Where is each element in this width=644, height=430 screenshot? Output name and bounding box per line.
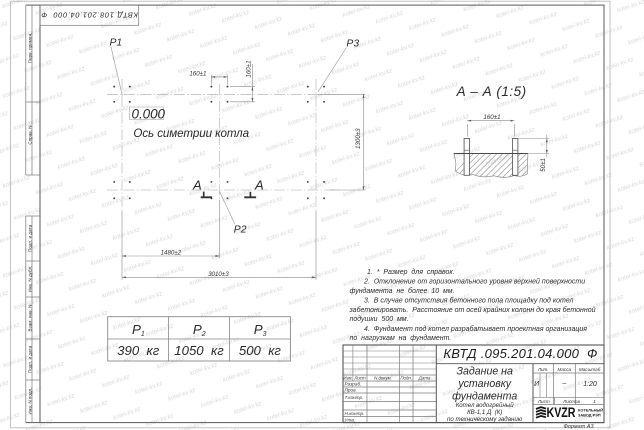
svg-text:Разраб.: Разраб. — [345, 382, 362, 387]
svg-text:Подп.: Подп. — [400, 375, 412, 380]
svg-text:фундамента не более 10 мм.: фундамента не более 10 мм. — [350, 287, 455, 295]
svg-text:2. Отклонение от горизонтальн: 2. Отклонение от горизонтального уровня … — [363, 278, 585, 286]
svg-text:Котел водогрейный: Котел водогрейный — [456, 402, 515, 409]
svg-text:КВТД.108.201.04.000 Ф: КВТД.108.201.04.000 Ф — [41, 11, 138, 20]
svg-text:КВ-1,1 Д (К): КВ-1,1 Д (К) — [467, 409, 502, 416]
svg-text:Р2: Р2 — [234, 224, 247, 235]
svg-text:ЗАВОД РЭП: ЗАВОД РЭП — [578, 414, 601, 418]
svg-text:Ось симетрии котла: Ось симетрии котла — [133, 127, 249, 140]
svg-text:500 кг: 500 кг — [239, 343, 282, 358]
svg-text:Лит.: Лит. — [537, 367, 549, 372]
svg-text:Пров.: Пров. — [345, 388, 357, 393]
svg-text:1:20: 1:20 — [583, 381, 597, 388]
svg-text:Лист: Лист — [353, 375, 366, 380]
svg-text:Масштаб: Масштаб — [579, 367, 601, 372]
svg-text:50±1: 50±1 — [540, 158, 547, 172]
svg-text:1480±2: 1480±2 — [161, 250, 182, 257]
svg-text:Р3: Р3 — [346, 39, 359, 50]
svg-text:Справ. N: Справ. N — [27, 125, 32, 144]
svg-text:KVZR: KVZR — [547, 405, 576, 421]
svg-text:Р1: Р1 — [110, 38, 123, 49]
svg-text:Т.контр.: Т.контр. — [345, 395, 364, 400]
svg-text:Взам. инв. N: Взам. инв. N — [27, 305, 32, 332]
svg-text:А: А — [254, 178, 264, 193]
svg-text:3010±3: 3010±3 — [208, 271, 229, 278]
svg-text:установку: установку — [457, 378, 511, 390]
svg-text:Задание на: Задание на — [456, 366, 513, 378]
svg-text:Изм.: Изм. — [343, 375, 352, 380]
svg-text:А: А — [192, 178, 202, 193]
svg-text:забетонировать. Расстояние от: забетонировать. Расстояние от осей крайн… — [349, 306, 596, 314]
svg-text:КВТД .095.201.04.000 Ф: КВТД .095.201.04.000 Ф — [443, 346, 597, 361]
svg-text:1. * Размер для справок.: 1. * Размер для справок. — [367, 268, 455, 276]
svg-text:N докум.: N докум. — [374, 375, 392, 380]
svg-text:Перв. примен.: Перв. примен. — [27, 33, 32, 64]
svg-text:Подп. и дата: Подп. и дата — [27, 346, 32, 374]
svg-text:Подп. и дата: Подп. и дата — [27, 225, 32, 253]
svg-text:3. В случае отсутствия бетонн: 3. В случае отсутствия бетонного пола пл… — [364, 297, 574, 305]
svg-text:Формат А3: Формат А3 — [563, 424, 594, 430]
svg-text:по техническому заданию: по техническому заданию — [447, 416, 523, 423]
svg-text:фундамента: фундамента — [452, 390, 517, 402]
svg-text:Инв. N дубл.: Инв. N дубл. — [27, 266, 32, 293]
svg-text:–: – — [561, 380, 566, 387]
svg-text:А – А (1:5): А – А (1:5) — [456, 84, 527, 99]
svg-text:по нагрузкам на фундамент.: по нагрузкам на фундамент. — [350, 334, 452, 342]
svg-text:КОТЕЛЬНЫЙ: КОТЕЛЬНЫЙ — [578, 408, 603, 412]
svg-text:4. Фундамент под котел разраб: 4. Фундамент под котел разрабатывает про… — [364, 325, 587, 333]
svg-text:Лист: Лист — [537, 399, 550, 404]
svg-text:Масса: Масса — [558, 367, 572, 372]
svg-text:0.000: 0.000 — [132, 106, 166, 121]
svg-text:Дата: Дата — [418, 375, 431, 380]
svg-text:1050 кг: 1050 кг — [174, 343, 224, 358]
svg-text:1: 1 — [593, 399, 596, 404]
svg-text:Инв. N подл.: Инв. N подл. — [27, 387, 32, 414]
svg-text:160±1: 160±1 — [483, 114, 500, 121]
svg-text:Утв.: Утв. — [345, 417, 356, 422]
svg-text:160±1: 160±1 — [246, 60, 253, 77]
svg-text:1300±3: 1300±3 — [355, 128, 362, 149]
svg-text:Листов: Листов — [562, 399, 580, 404]
svg-text:160±1: 160±1 — [189, 70, 206, 77]
svg-text:Н.контр.: Н.контр. — [345, 411, 365, 416]
svg-text:390 кг: 390 кг — [117, 343, 160, 358]
svg-text:подушки 500 мм.: подушки 500 мм. — [350, 315, 409, 323]
